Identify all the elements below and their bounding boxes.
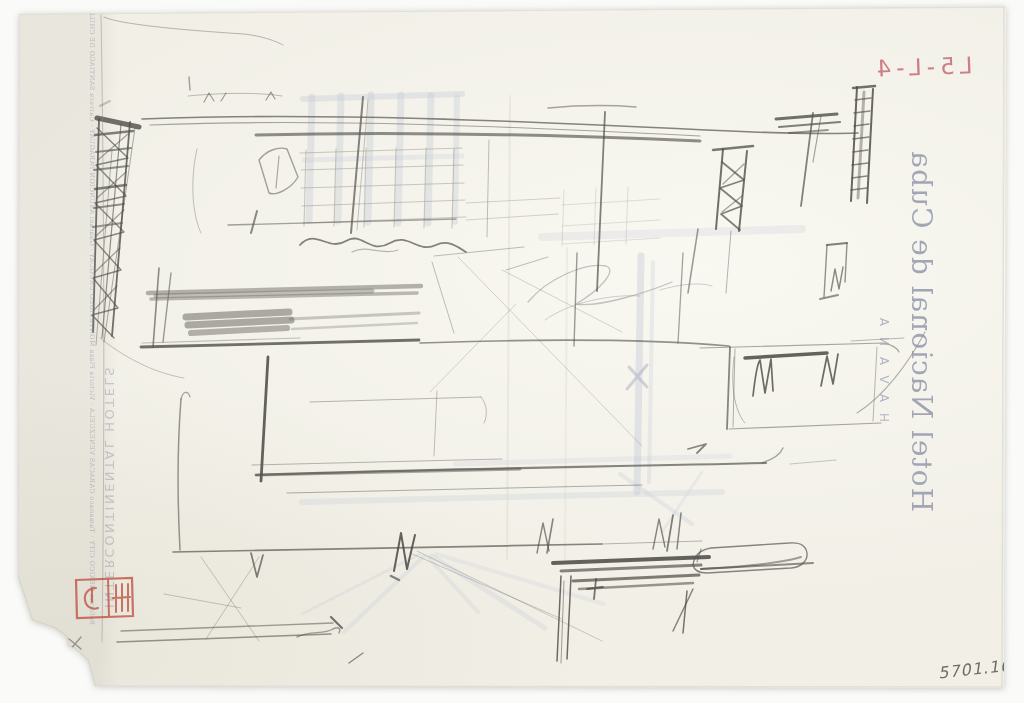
sketch-bottom-table	[553, 543, 813, 663]
letterhead-paper: Hotel Nacional de Cuba HAVANA INTERCONTI…	[0, 0, 1024, 703]
letterhead-hotels-column: Reforma MEXICO CITY · Tamanaco CARACAS V…	[88, 0, 96, 625]
sketch-left-tower	[92, 118, 184, 378]
letterhead-hotel-name: Hotel Nacional de Cuba	[901, 150, 941, 512]
sketch-top-lines	[142, 77, 858, 141]
fold-lines	[507, 96, 567, 560]
sketch-columns	[487, 86, 875, 346]
letterhead-brand-column: INTERCONTINENTAL HOTELS	[102, 365, 117, 608]
scanned-sheet-stage: Hotel Nacional de Cuba HAVANA INTERCONTI…	[0, 0, 1024, 703]
red-collection-stamp-icon	[70, 574, 140, 624]
pencil-sketch	[0, 0, 1024, 703]
sketch-lower-left	[69, 357, 836, 663]
letterhead-city: HAVANA	[877, 307, 891, 422]
red-mirrored-inscription: L5-L-4	[852, 52, 993, 83]
smudge-marks	[302, 94, 802, 632]
paper-shadow: Hotel Nacional de Cuba HAVANA INTERCONTI…	[0, 0, 1024, 703]
sketch-right-panel	[700, 332, 925, 429]
